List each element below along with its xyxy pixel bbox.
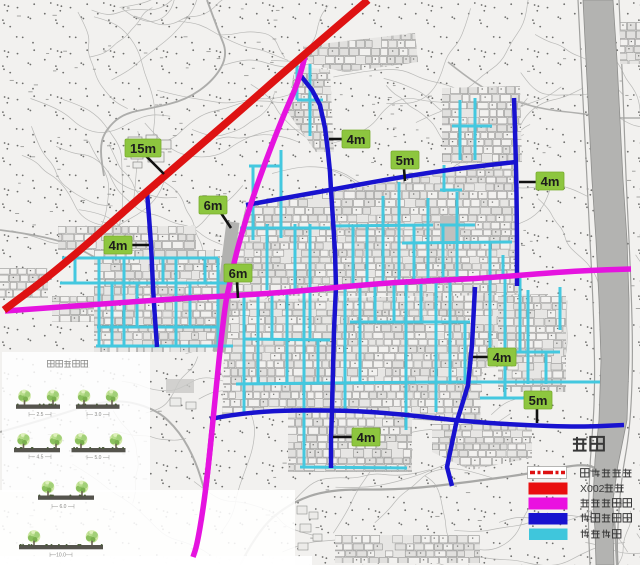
svg-text:4m: 4m (347, 132, 366, 147)
svg-text:5m: 5m (529, 393, 548, 408)
svg-text:6.0: 6.0 (60, 504, 67, 510)
svg-text:10.0: 10.0 (56, 553, 66, 559)
svg-text:6m: 6m (204, 198, 223, 213)
svg-text:6m: 6m (229, 266, 248, 281)
svg-text:4m: 4m (357, 430, 376, 445)
svg-text:4m: 4m (109, 238, 128, 253)
svg-text:3.0: 3.0 (95, 412, 102, 418)
svg-text:5.0: 5.0 (95, 455, 102, 461)
svg-text:5m: 5m (396, 153, 415, 168)
svg-text:4m: 4m (541, 174, 560, 189)
svg-text:2.5: 2.5 (37, 412, 44, 418)
svg-text:4m: 4m (493, 350, 512, 365)
svg-text:15m: 15m (130, 141, 156, 156)
svg-text:X002: X002 (580, 483, 605, 495)
svg-text:4.5: 4.5 (37, 455, 44, 461)
